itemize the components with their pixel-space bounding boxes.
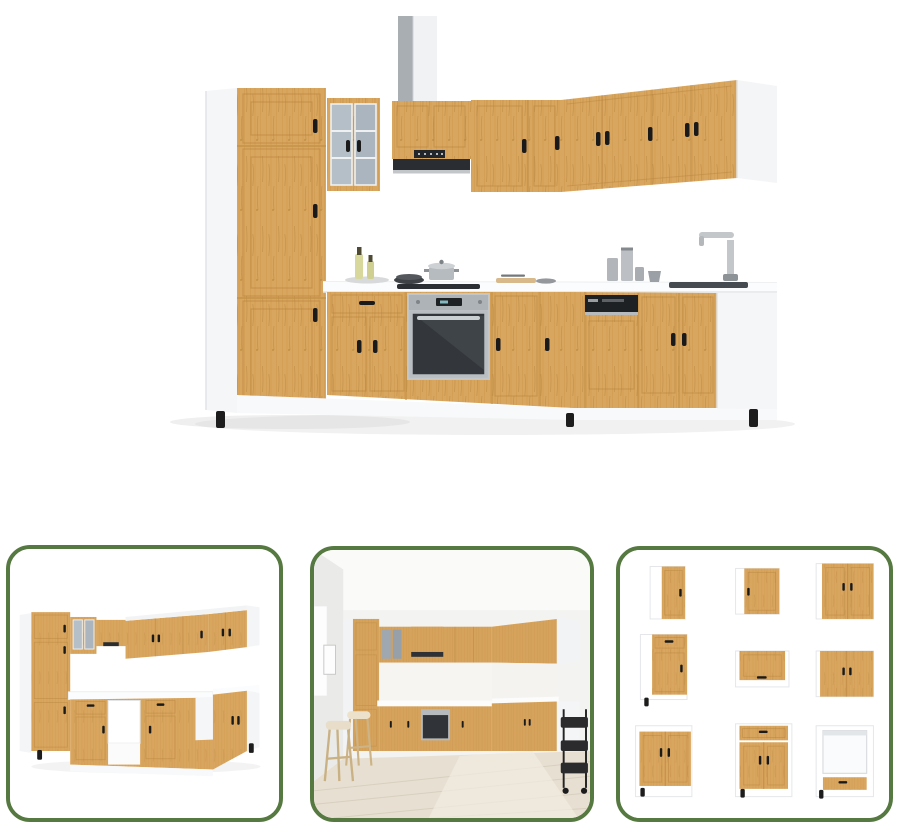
frying-pan	[394, 274, 424, 284]
oven-cavity	[108, 700, 140, 743]
module-wall-cabinet-one-door	[736, 568, 780, 614]
oven	[421, 709, 450, 740]
ceiling	[314, 550, 590, 610]
main-product-image	[40, 16, 900, 556]
thumbnail-back-view[interactable]	[6, 545, 283, 822]
glass-wall-cabinet	[327, 98, 380, 191]
module-oven-housing-cabinet	[816, 726, 873, 799]
base-cabinets-left	[327, 292, 572, 408]
oven	[407, 293, 490, 380]
picture-frame	[324, 645, 336, 674]
thumbnail-room-scene[interactable]	[310, 546, 594, 822]
module-wall-cabinet-flip-up	[736, 651, 789, 687]
module-base-cabinet-two-door-wide	[636, 726, 692, 797]
kitchen-set	[343, 617, 579, 751]
thumbnail-modules-grid[interactable]	[616, 546, 893, 822]
oven-cavity	[823, 731, 867, 774]
module-wall-cabinet-narrow	[650, 567, 685, 619]
extractor-hood	[393, 159, 470, 174]
tall-cabinet	[206, 88, 326, 413]
extractor-duct	[398, 16, 437, 104]
hood-cabinet	[392, 101, 471, 174]
base-cabinets-right	[572, 292, 777, 409]
module-base-cabinet-narrow-drawer	[640, 634, 687, 706]
module-wall-cabinet-two-door	[816, 651, 873, 697]
module-base-cabinet-drawer-two-door	[736, 724, 792, 798]
tall-cabinet	[20, 612, 70, 753]
module-wall-cabinet-two-door-wide	[816, 564, 873, 619]
product-image-page	[0, 0, 900, 830]
